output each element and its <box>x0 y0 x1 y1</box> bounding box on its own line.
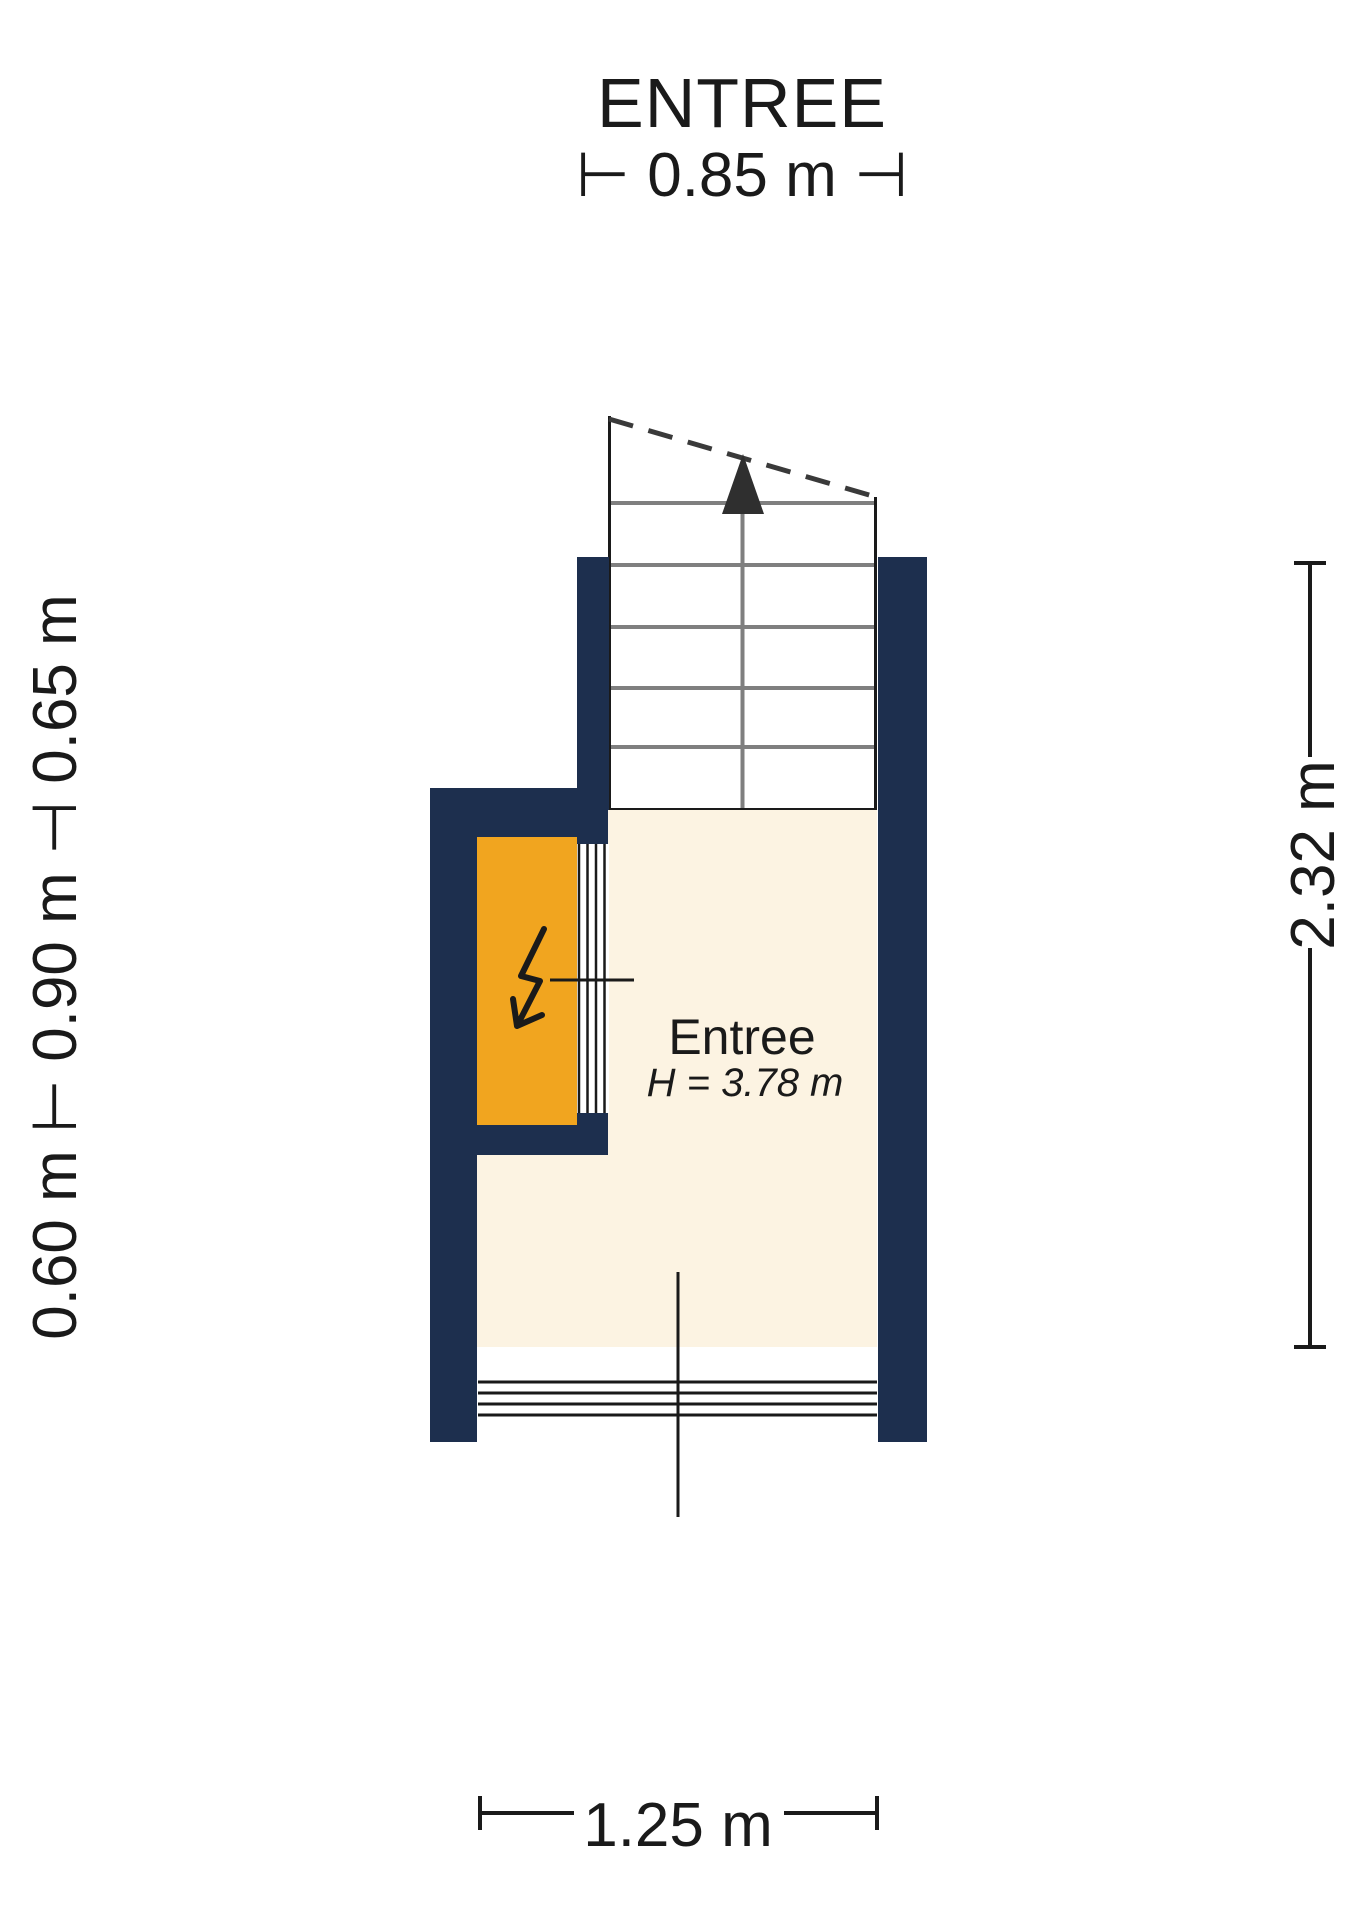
page-title: ENTREE <box>597 64 887 142</box>
room-height-label: H = 3.78 m <box>647 1061 844 1105</box>
right-outer-wall <box>878 557 927 1442</box>
dimension-left-label: 0.60 m ⊢ 0.90 m ⊣ 0.65 m <box>21 594 90 1340</box>
dimension-right-label: 2.32 m <box>1279 760 1348 950</box>
staircase <box>608 414 877 810</box>
floorplan-page: 2.32 m 1.25 m 0.60 m ⊢ 0.90 m ⊣ 0.65 m E… <box>0 0 1358 1920</box>
floorplan-canvas: 2.32 m 1.25 m 0.60 m ⊢ 0.90 m ⊣ 0.65 m E… <box>0 0 1358 1920</box>
dimension-top-label: ⊢ 0.85 m ⊣ <box>576 141 908 210</box>
closet-door-bottom-cap <box>577 1113 609 1155</box>
dimension-bottom-label: 1.25 m <box>583 1791 773 1860</box>
left-outer-wall <box>430 788 477 1442</box>
room-name-label: Entree <box>668 1009 815 1065</box>
